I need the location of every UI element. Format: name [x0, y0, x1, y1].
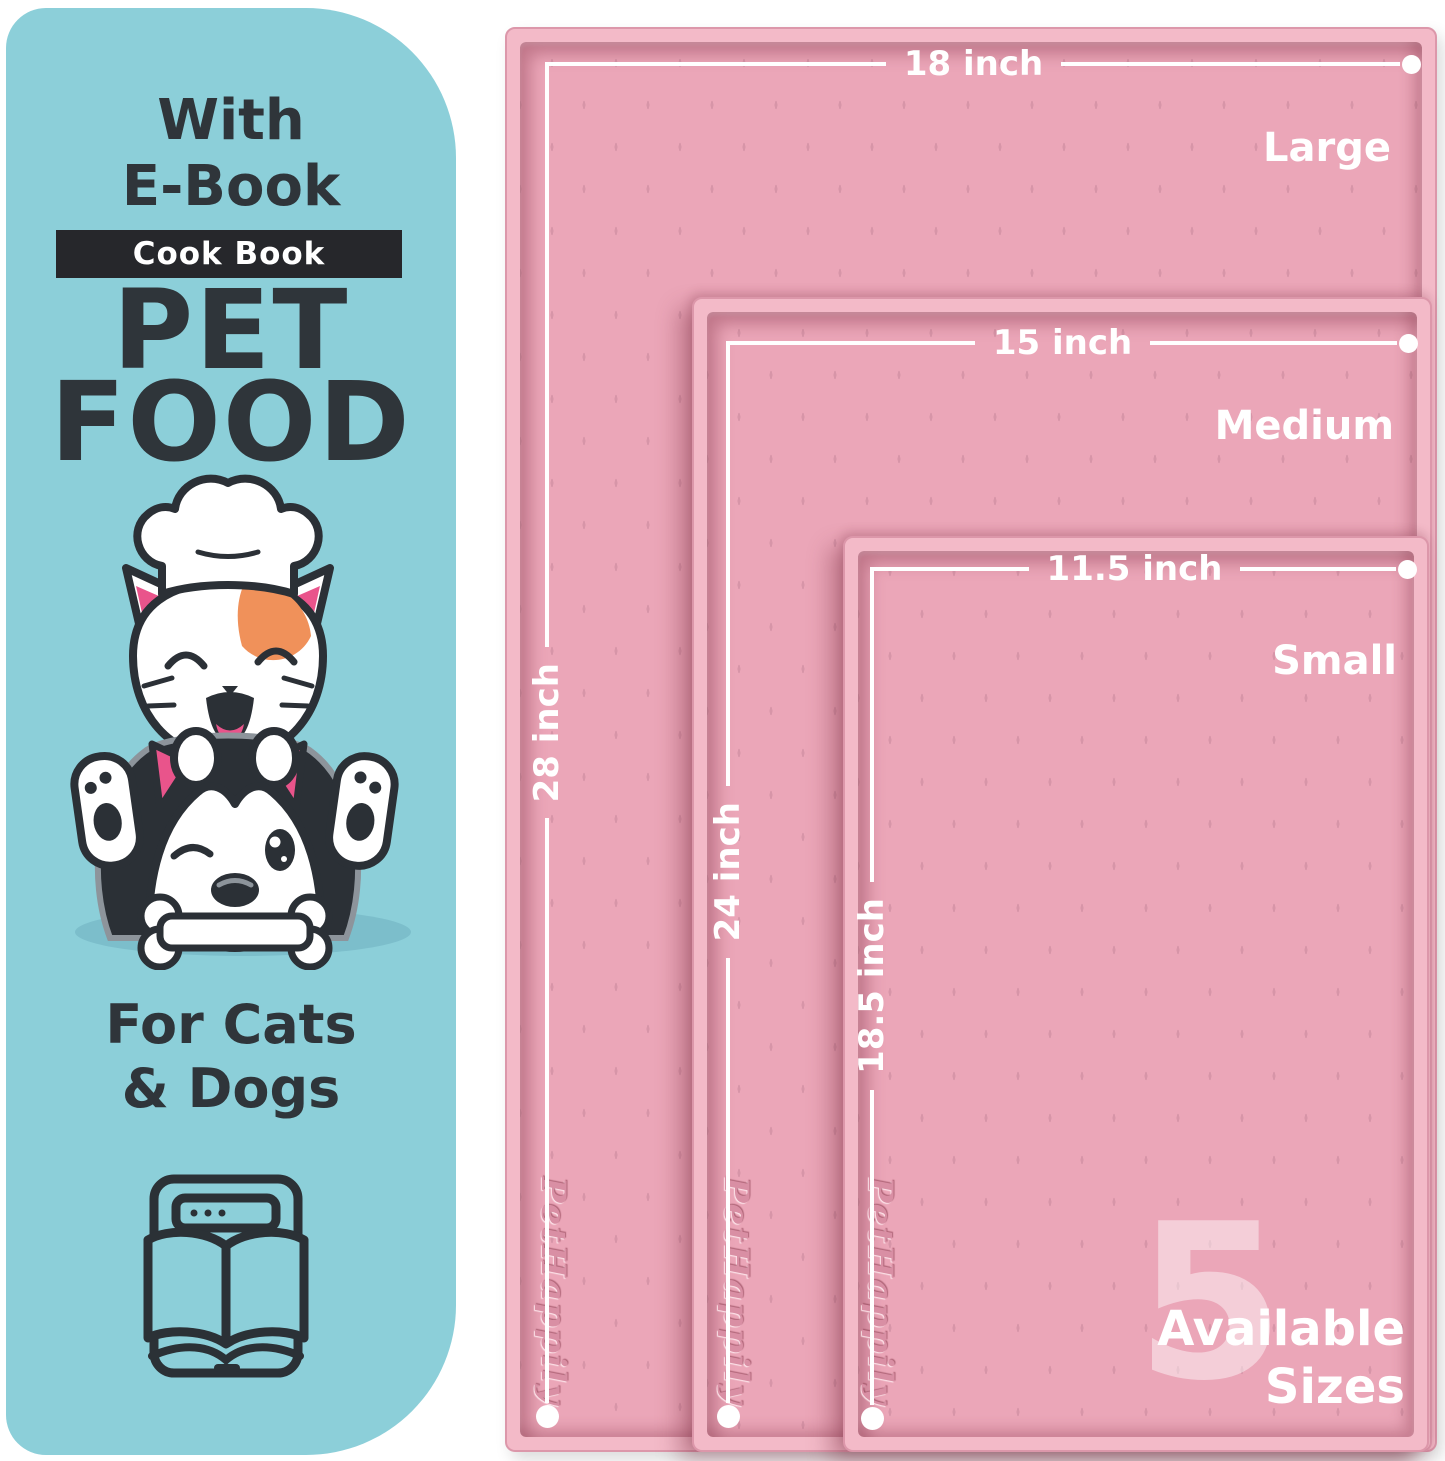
pet-food-title-line2: FOOD: [6, 376, 456, 468]
cat-paw: [174, 731, 218, 785]
mat-small-height-dimension: 18.5 inch: [850, 567, 894, 1430]
mat-large-height-label: 28 inch: [527, 663, 567, 802]
mat-large-width-label: 18 inch: [904, 44, 1043, 84]
available-sizes-badge: 5 Available Sizes: [1075, 1186, 1405, 1416]
sizes-text-line1: Available: [1157, 1300, 1405, 1358]
sizes-text-line2: Sizes: [1157, 1358, 1405, 1416]
dog-paw: [71, 752, 144, 869]
mat-large-height-dimension: 28 inch: [525, 62, 569, 1428]
dimension-endpoint-dot: [1398, 560, 1417, 579]
dimension-endpoint-dot: [861, 1407, 884, 1430]
audience-line1: For Cats: [6, 993, 456, 1057]
mat-small: 11.5 inch 18.5 inch Small PetHappily 5 A…: [843, 536, 1429, 1452]
ebook-heading-line1: With: [6, 88, 456, 154]
ebook-heading-line2: E-Book: [6, 154, 456, 220]
cat-paw: [252, 731, 296, 785]
info-card: With E-Book Cook Book PET FOOD: [6, 8, 456, 1455]
chef-hat-icon: [137, 479, 318, 594]
mat-medium-height-dimension: 24 inch: [706, 341, 750, 1428]
mat-medium-size-name: Medium: [1215, 403, 1394, 449]
cat-dog-chef-illustration: [48, 460, 423, 970]
dog-open-eye: [265, 829, 295, 871]
mat-medium-width-dimension: 15 inch: [728, 321, 1418, 365]
dimension-endpoint-dot: [1399, 334, 1418, 353]
pet-food-title: PET FOOD: [6, 284, 456, 468]
ebook-heading: With E-Book: [6, 88, 456, 220]
dimension-endpoint-dot: [1402, 55, 1421, 74]
cat-face: [126, 568, 330, 758]
dimension-endpoint-dot: [536, 1405, 559, 1428]
sizes-text: Available Sizes: [1157, 1300, 1405, 1416]
mat-medium-width-label: 15 inch: [993, 323, 1132, 363]
mat-small-width-label: 11.5 inch: [1047, 549, 1223, 589]
mat-small-height-label: 18.5 inch: [852, 898, 892, 1074]
mat-medium-height-label: 24 inch: [708, 802, 748, 941]
ebook-icon: [140, 1174, 312, 1378]
dog-paw: [325, 752, 398, 869]
mat-small-width-dimension: 11.5 inch: [873, 547, 1417, 591]
mat-large-width-dimension: 18 inch: [547, 42, 1421, 86]
audience-line2: & Dogs: [6, 1057, 456, 1121]
mat-large-size-name: Large: [1263, 125, 1391, 171]
product-image: With E-Book Cook Book PET FOOD: [0, 0, 1445, 1461]
audience-text: For Cats & Dogs: [6, 993, 456, 1121]
dimension-endpoint-dot: [717, 1405, 740, 1428]
mat-small-size-name: Small: [1272, 638, 1397, 684]
